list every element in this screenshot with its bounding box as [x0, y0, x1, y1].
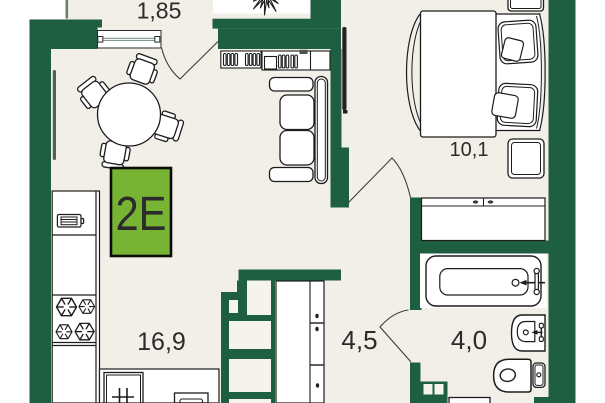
svg-text:4,0: 4,0 — [451, 325, 487, 355]
svg-text:1,85: 1,85 — [137, 0, 182, 24]
svg-text:10,1: 10,1 — [450, 139, 489, 161]
svg-text:4,5: 4,5 — [341, 325, 377, 355]
svg-text:16,9: 16,9 — [137, 328, 186, 356]
svg-text:2E: 2E — [116, 188, 167, 241]
